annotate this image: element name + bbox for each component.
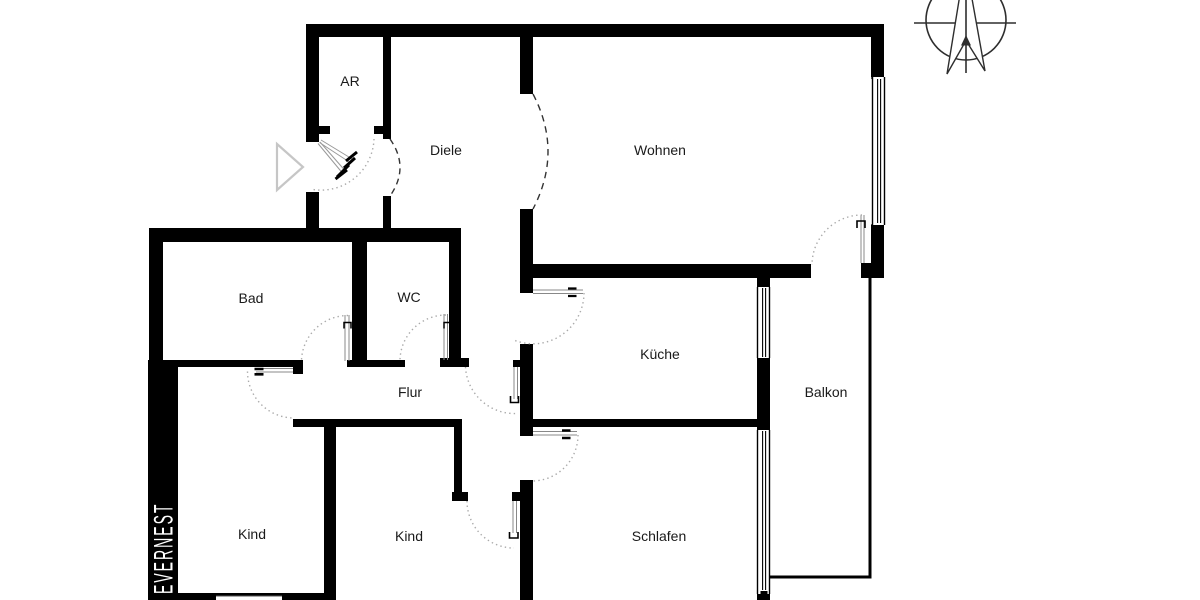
svg-text:Balkon: Balkon bbox=[805, 384, 848, 400]
svg-text:WC: WC bbox=[397, 289, 420, 305]
svg-text:Diele: Diele bbox=[430, 142, 462, 158]
svg-text:Schlafen: Schlafen bbox=[632, 528, 686, 544]
svg-text:Flur: Flur bbox=[398, 384, 422, 400]
svg-text:Bad: Bad bbox=[239, 290, 264, 306]
svg-text:Kind: Kind bbox=[395, 528, 423, 544]
svg-text:Wohnen: Wohnen bbox=[634, 142, 686, 158]
svg-text:EVERNEST: EVERNEST bbox=[149, 503, 179, 594]
svg-text:Kind: Kind bbox=[238, 526, 266, 542]
svg-text:AR: AR bbox=[340, 73, 359, 89]
svg-text:Küche: Küche bbox=[640, 346, 680, 362]
